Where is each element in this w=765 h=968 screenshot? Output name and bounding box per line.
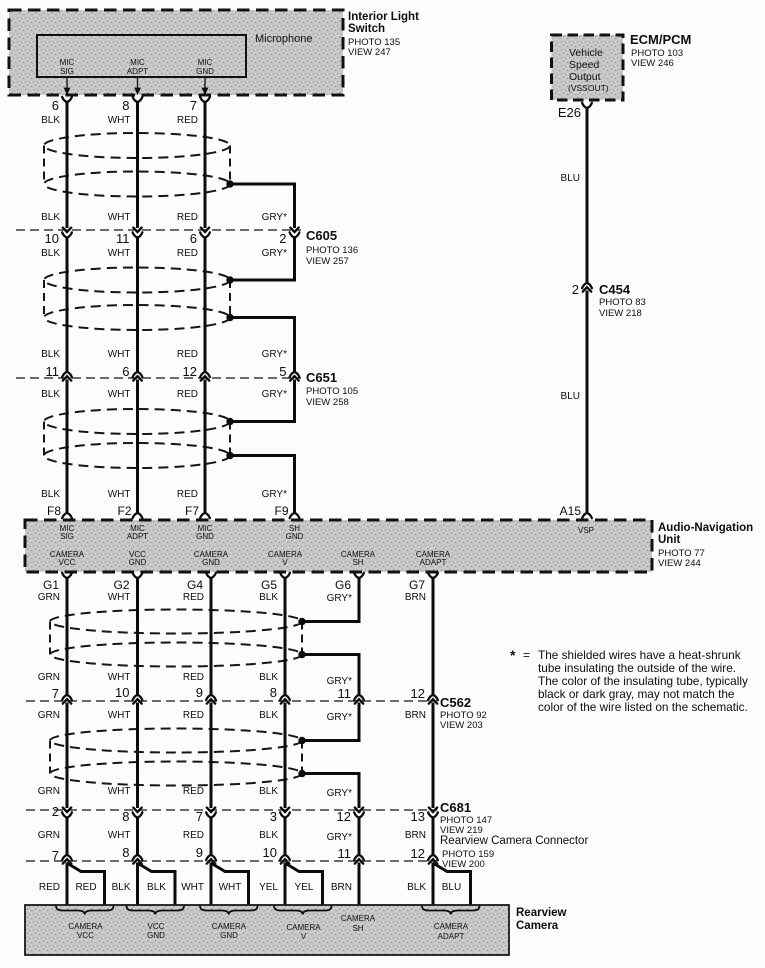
svg-text:BLK: BLK bbox=[41, 489, 60, 500]
svg-text:A15: A15 bbox=[560, 504, 582, 518]
svg-text:RED: RED bbox=[75, 882, 96, 893]
svg-text:6: 6 bbox=[190, 231, 197, 246]
svg-text:RED: RED bbox=[177, 212, 198, 223]
svg-text:9: 9 bbox=[196, 685, 203, 700]
svg-text:Switch: Switch bbox=[348, 23, 385, 35]
svg-text:GRN: GRN bbox=[38, 592, 60, 603]
svg-text:11: 11 bbox=[338, 846, 352, 861]
svg-text:GND: GND bbox=[286, 532, 304, 541]
svg-text:VCC: VCC bbox=[77, 931, 94, 940]
svg-text:BLK: BLK bbox=[41, 349, 60, 360]
svg-text:PHOTO 105: PHOTO 105 bbox=[306, 386, 358, 397]
svg-text:GRY*: GRY* bbox=[327, 832, 352, 843]
svg-text:RED: RED bbox=[183, 672, 204, 683]
svg-text:GND: GND bbox=[129, 558, 147, 567]
svg-text:BLU: BLU bbox=[442, 882, 461, 893]
svg-text:GRY*: GRY* bbox=[327, 712, 352, 723]
svg-text:GRY*: GRY* bbox=[262, 349, 287, 360]
svg-text:YEL: YEL bbox=[259, 882, 278, 893]
svg-text:11: 11 bbox=[116, 231, 130, 246]
svg-text:Rearview: Rearview bbox=[516, 907, 567, 919]
svg-text:RED: RED bbox=[177, 489, 198, 500]
svg-text:BLU: BLU bbox=[561, 173, 580, 184]
svg-text:10: 10 bbox=[263, 845, 277, 860]
svg-text:SIG: SIG bbox=[60, 67, 74, 76]
svg-text:WHT: WHT bbox=[108, 212, 131, 223]
svg-text:GRY*: GRY* bbox=[262, 248, 287, 259]
svg-text:GRN: GRN bbox=[38, 786, 60, 797]
svg-text:7: 7 bbox=[190, 98, 197, 113]
svg-text:ECM/PCM: ECM/PCM bbox=[630, 32, 691, 47]
svg-text:8: 8 bbox=[122, 845, 129, 860]
svg-text:7: 7 bbox=[52, 848, 59, 863]
svg-text:G2: G2 bbox=[113, 578, 129, 592]
svg-text:GRY*: GRY* bbox=[262, 212, 287, 223]
svg-text:VIEW 257: VIEW 257 bbox=[306, 256, 349, 267]
svg-text:RED: RED bbox=[177, 349, 198, 360]
svg-text:C605: C605 bbox=[306, 228, 337, 243]
svg-text:Interior Light: Interior Light bbox=[348, 11, 419, 23]
svg-text:Camera: Camera bbox=[516, 920, 559, 932]
svg-text:GRN: GRN bbox=[38, 672, 60, 683]
svg-text:RED: RED bbox=[177, 115, 198, 126]
svg-text:BLK: BLK bbox=[147, 882, 166, 893]
svg-text:E26: E26 bbox=[558, 105, 581, 120]
svg-text:C651: C651 bbox=[306, 370, 337, 385]
svg-text:10: 10 bbox=[45, 231, 59, 246]
svg-text:C562: C562 bbox=[440, 695, 471, 710]
svg-text:WHT: WHT bbox=[108, 489, 131, 500]
svg-text:Microphone: Microphone bbox=[255, 33, 312, 45]
svg-text:F2: F2 bbox=[117, 504, 131, 518]
svg-text:color of the wire listed on th: color of the wire listed on the schemati… bbox=[538, 700, 748, 714]
svg-text:GND: GND bbox=[202, 558, 220, 567]
svg-text:The shielded wires have a heat: The shielded wires have a heat-shrunk bbox=[538, 648, 741, 662]
svg-text:BRN: BRN bbox=[405, 592, 426, 603]
svg-text:YEL: YEL bbox=[295, 882, 314, 893]
svg-text:tube insulating the outside of: tube insulating the outside of the wire. bbox=[538, 661, 736, 675]
svg-text:The color of the insulating tu: The color of the insulating tube, typica… bbox=[538, 674, 748, 688]
svg-text:12: 12 bbox=[411, 686, 425, 701]
svg-text:RED: RED bbox=[177, 389, 198, 400]
svg-text:G1: G1 bbox=[43, 578, 59, 592]
svg-text:Rearview Camera Connector: Rearview Camera Connector bbox=[440, 835, 588, 847]
svg-text:GRY*: GRY* bbox=[262, 489, 287, 500]
svg-text:F9: F9 bbox=[274, 504, 288, 518]
svg-text:MIC: MIC bbox=[60, 58, 75, 67]
svg-text:VIEW 203: VIEW 203 bbox=[440, 720, 483, 731]
svg-text:WHT: WHT bbox=[108, 830, 131, 841]
svg-text:RED: RED bbox=[39, 882, 60, 893]
svg-text:13: 13 bbox=[411, 809, 425, 824]
svg-text:GRY*: GRY* bbox=[262, 389, 287, 400]
svg-text:VIEW 258: VIEW 258 bbox=[306, 397, 349, 408]
svg-text:BLK: BLK bbox=[259, 592, 278, 603]
svg-text:7: 7 bbox=[52, 686, 59, 701]
svg-text:8: 8 bbox=[122, 809, 129, 824]
svg-text:BLK: BLK bbox=[407, 882, 426, 893]
svg-text:=: = bbox=[523, 648, 530, 662]
svg-text:BLU: BLU bbox=[561, 391, 580, 402]
svg-text:BRN: BRN bbox=[405, 830, 426, 841]
svg-text:VIEW 200: VIEW 200 bbox=[442, 859, 485, 870]
svg-text:BRN: BRN bbox=[331, 882, 352, 893]
svg-text:GRN: GRN bbox=[38, 830, 60, 841]
svg-text:11: 11 bbox=[338, 686, 352, 701]
svg-text:CAMERA: CAMERA bbox=[68, 922, 103, 931]
svg-text:BLK: BLK bbox=[259, 672, 278, 683]
svg-text:ADAPT: ADAPT bbox=[420, 558, 447, 567]
svg-text:2: 2 bbox=[572, 282, 579, 297]
svg-text:CAMERA: CAMERA bbox=[212, 922, 247, 931]
svg-text:MIC: MIC bbox=[130, 58, 145, 67]
svg-text:VIEW 218: VIEW 218 bbox=[599, 308, 642, 319]
svg-text:GND: GND bbox=[196, 67, 214, 76]
svg-text:VCC: VCC bbox=[59, 558, 76, 567]
svg-text:ADPT: ADPT bbox=[127, 67, 148, 76]
svg-text:WHT: WHT bbox=[108, 592, 131, 603]
svg-text:BLK: BLK bbox=[259, 710, 278, 721]
svg-text:Unit: Unit bbox=[658, 534, 681, 546]
svg-text:PHOTO 83: PHOTO 83 bbox=[599, 297, 646, 308]
svg-text:GRY*: GRY* bbox=[327, 593, 352, 604]
svg-text:7: 7 bbox=[196, 809, 203, 824]
svg-text:G7: G7 bbox=[409, 578, 425, 592]
svg-text:Speed: Speed bbox=[569, 59, 600, 71]
svg-text:WHT: WHT bbox=[181, 882, 204, 893]
svg-text:8: 8 bbox=[270, 685, 277, 700]
svg-text:CAMERA: CAMERA bbox=[286, 923, 321, 932]
svg-text:11: 11 bbox=[46, 364, 60, 379]
svg-text:C454: C454 bbox=[599, 282, 631, 297]
svg-text:CAMERA: CAMERA bbox=[434, 922, 469, 931]
svg-text:*: * bbox=[510, 647, 516, 663]
svg-text:G6: G6 bbox=[335, 578, 351, 592]
svg-text:BLK: BLK bbox=[259, 786, 278, 797]
svg-text:WHT: WHT bbox=[108, 786, 131, 797]
svg-text:BLK: BLK bbox=[259, 830, 278, 841]
svg-text:WHT: WHT bbox=[108, 710, 131, 721]
svg-text:BLK: BLK bbox=[41, 212, 60, 223]
svg-text:WHT: WHT bbox=[219, 882, 242, 893]
svg-text:Output: Output bbox=[569, 71, 601, 83]
svg-text:9: 9 bbox=[196, 845, 203, 860]
svg-text:SH: SH bbox=[352, 924, 363, 933]
svg-text:RED: RED bbox=[183, 786, 204, 797]
svg-text:5: 5 bbox=[279, 364, 286, 379]
svg-text:2: 2 bbox=[52, 804, 59, 819]
svg-text:Audio-Navigation: Audio-Navigation bbox=[658, 522, 753, 534]
svg-text:PHOTO 136: PHOTO 136 bbox=[306, 245, 358, 256]
svg-text:RED: RED bbox=[183, 710, 204, 721]
svg-text:C681: C681 bbox=[440, 800, 471, 815]
svg-text:10: 10 bbox=[115, 685, 129, 700]
svg-text:black or dark gray, may not ma: black or dark gray, may not match the bbox=[538, 687, 735, 701]
svg-text:VIEW 247: VIEW 247 bbox=[348, 47, 391, 58]
svg-text:WHT: WHT bbox=[108, 115, 131, 126]
svg-text:(VSSOUT): (VSSOUT) bbox=[568, 83, 609, 93]
svg-text:WHT: WHT bbox=[108, 389, 131, 400]
svg-text:RED: RED bbox=[183, 592, 204, 603]
svg-text:BLK: BLK bbox=[112, 882, 131, 893]
svg-text:V: V bbox=[282, 558, 288, 567]
svg-text:GND: GND bbox=[220, 931, 238, 940]
svg-text:VSP: VSP bbox=[578, 526, 594, 535]
svg-text:MIC: MIC bbox=[198, 58, 213, 67]
svg-text:SIG: SIG bbox=[60, 532, 74, 541]
svg-text:RED: RED bbox=[183, 830, 204, 841]
svg-text:CAMERA: CAMERA bbox=[341, 914, 376, 923]
svg-text:6: 6 bbox=[122, 364, 129, 379]
svg-text:ADPT: ADPT bbox=[127, 532, 148, 541]
svg-text:G5: G5 bbox=[261, 578, 277, 592]
svg-text:WHT: WHT bbox=[108, 349, 131, 360]
svg-text:3: 3 bbox=[270, 809, 277, 824]
svg-text:BLK: BLK bbox=[41, 248, 60, 259]
svg-text:WHT: WHT bbox=[108, 248, 131, 259]
svg-text:SH: SH bbox=[352, 558, 363, 567]
svg-text:12: 12 bbox=[183, 364, 197, 379]
svg-text:BRN: BRN bbox=[405, 710, 426, 721]
svg-text:BLK: BLK bbox=[41, 115, 60, 126]
svg-text:2: 2 bbox=[279, 231, 286, 246]
svg-text:8: 8 bbox=[122, 98, 129, 113]
svg-text:GRY*: GRY* bbox=[327, 788, 352, 799]
svg-text:12: 12 bbox=[411, 846, 425, 861]
svg-text:VIEW 246: VIEW 246 bbox=[631, 58, 674, 69]
svg-text:WHT: WHT bbox=[108, 672, 131, 683]
svg-text:V: V bbox=[301, 932, 307, 941]
svg-text:F8: F8 bbox=[47, 504, 61, 518]
svg-text:VIEW 244: VIEW 244 bbox=[658, 558, 701, 569]
svg-text:GRN: GRN bbox=[38, 710, 60, 721]
svg-text:ADAPT: ADAPT bbox=[438, 932, 465, 941]
svg-text:G4: G4 bbox=[187, 578, 203, 592]
svg-text:BLK: BLK bbox=[41, 389, 60, 400]
svg-text:12: 12 bbox=[337, 809, 351, 824]
svg-text:GND: GND bbox=[147, 931, 165, 940]
svg-text:Vehicle: Vehicle bbox=[569, 47, 603, 59]
svg-text:GND: GND bbox=[196, 532, 214, 541]
svg-text:RED: RED bbox=[177, 248, 198, 259]
svg-text:VCC: VCC bbox=[148, 922, 165, 931]
svg-text:F7: F7 bbox=[185, 504, 199, 518]
svg-text:6: 6 bbox=[52, 98, 59, 113]
